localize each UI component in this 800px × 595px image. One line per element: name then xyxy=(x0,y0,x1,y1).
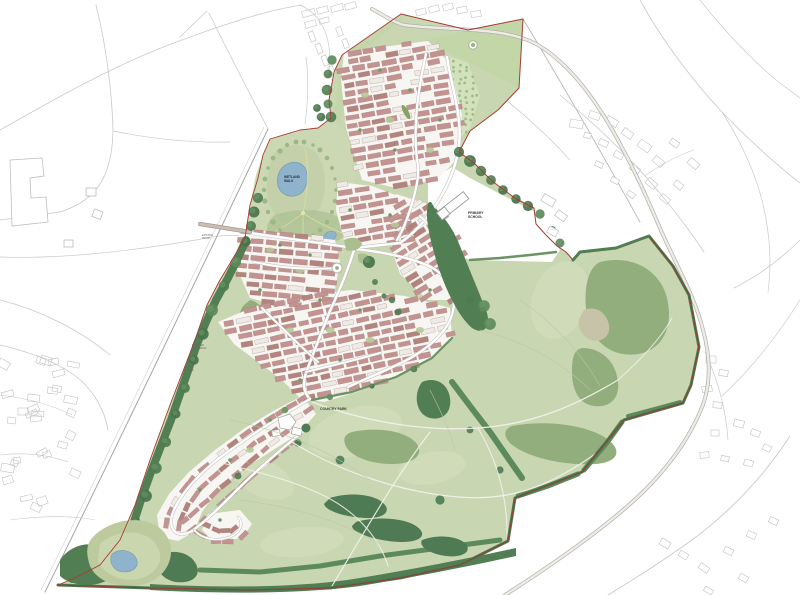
svg-text:COUNTRY PARK: COUNTRY PARK xyxy=(320,407,347,411)
svg-text:WALK: WALK xyxy=(284,179,294,183)
svg-text:SCHOOL: SCHOOL xyxy=(468,215,483,219)
svg-text:TRACK: TRACK xyxy=(202,237,211,240)
svg-text:BUFFER: BUFFER xyxy=(184,369,194,372)
svg-text:HEDGEROW: HEDGEROW xyxy=(192,347,207,350)
